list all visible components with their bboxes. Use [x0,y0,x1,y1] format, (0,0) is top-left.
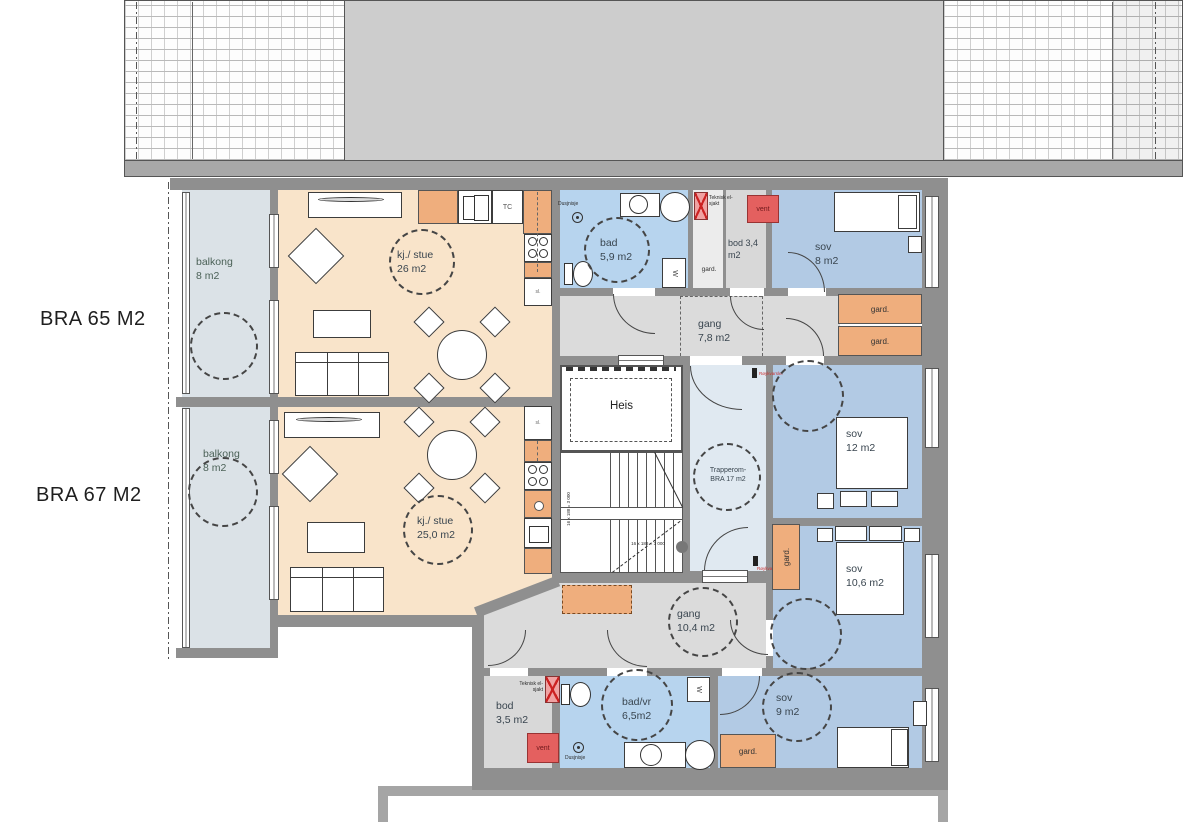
floor-plan: TC sl. sl. [0,0,1200,822]
wardrobe-sov8-upper: gard. [838,294,922,324]
fridge-icon [458,190,492,224]
el-shaft-bottom-icon [545,676,560,703]
room-label-sov8: sov8 m2 [815,241,838,268]
window-stue-top-2 [269,300,279,394]
counter-top-1 [418,190,458,224]
nightstand-sov106-left [817,528,833,542]
elevator-label: Heis [560,399,683,414]
stair-landing [561,507,682,520]
counter-dash-bottom [537,441,538,461]
gard-label: gard. [871,337,889,346]
stove-bottom-icon [524,462,552,490]
coffee-table-bottom [307,522,365,553]
tc-label: TC [503,204,512,211]
wardrobe-sov106: gard. [772,524,800,590]
vanity-bottom-sink [640,744,662,766]
room-label-bad-vr: bad/vr6,5m2 [622,696,651,723]
shower-symbol-top [572,212,583,223]
bed-sov9-pillow [891,729,908,766]
dusjnisje-top-label: Dusjnisje [558,201,578,207]
turning-circle-sov12 [772,360,844,432]
shower-symbol-bottom [573,742,584,753]
window-stue-bottom-2 [269,506,279,600]
counter-bot-1 [524,440,552,462]
gard-label: gard. [739,747,757,756]
wall-bottom-block-left [472,615,484,770]
toilet-bottom-tank [561,684,570,705]
bed-sov12-pillow-left [840,491,867,507]
vent-box-top: vent [747,195,779,223]
roof-eave-band [124,160,1183,177]
gard-label: gard. [754,544,818,570]
counter-bot-3 [524,548,552,574]
wall-bottom [472,768,948,790]
room-label-sov12: sov12 m2 [846,428,875,455]
roof-line-right [1112,2,1113,159]
stair-flight-upper [610,452,683,507]
window-sov8 [925,196,939,288]
nightstand-sov9 [913,701,927,726]
teknisk-top-label: Teknisk el- sjakt [709,195,733,207]
tall-cabinet-tc: TC [492,190,523,224]
wall-balcony-bottom [176,648,278,658]
doormat-dashed [562,585,632,614]
wardrobe-sov8-lower: gard. [838,326,922,356]
wardrobe-sov9: gard. [720,734,776,768]
dining-table-top [437,330,487,380]
elevator-door-marks [566,367,676,371]
bed-sov8-pillow [898,195,917,229]
washer-top-label: W [670,270,677,277]
room-balkong-bottom [182,406,270,652]
dusjnisje-bottom-label: Dusjnisje [565,755,585,761]
tv-bottom-icon [296,417,362,422]
bed-sov12-pillow-right [871,491,898,507]
opening-gangb-left-door [490,668,528,676]
bra-65-label: BRA 65 M2 [40,308,146,331]
nightstand-sov8 [908,236,922,253]
room-label-sov106: sov10,6 m2 [846,563,884,590]
counter-top-2 [524,262,552,278]
vent-top-label: vent [756,206,769,213]
roof-line-left [192,2,193,159]
oven-bottom-icon [524,518,552,548]
counter-dash-top [537,192,538,272]
sink-top-icon: sl. [524,278,552,306]
smoke-detector-top-icon [752,368,757,378]
trapperom-threshold [702,570,748,583]
el-shaft-top-icon [694,192,708,220]
demising-line-1 [680,296,681,356]
wall-under-stue [270,615,484,627]
window-sov106 [925,554,939,638]
teknisk-bottom-label: Teknisk el- sjakt [506,681,543,693]
room-label-balkong-top: balkong8 m2 [196,256,233,283]
tv-top-icon [318,197,384,202]
property-line [168,182,169,662]
vanity-top-sink [629,195,648,214]
room-label-bod-bottom: bod3,5 m2 [496,700,528,727]
vent-bottom-label: vent [536,745,549,752]
room-label-stue-top: kj./ stue26 m2 [397,249,433,276]
sofa-top [295,352,389,396]
bra-67-label: BRA 67 M2 [36,484,142,507]
window-sov12 [925,368,939,448]
balcony-glass-bottom [182,408,190,648]
roof-line-dashdot-left [136,2,137,159]
washer-bottom: W [687,677,710,702]
window-stue-top-1 [269,214,279,268]
room-label-balkong-bottom: balkong8 m2 [203,448,240,475]
sofa-bottom [290,567,384,612]
room-label-gang-top: gang7,8 m2 [698,318,730,345]
nightstand-sov106-right [904,528,920,542]
roof-line-dashdot-right [1155,2,1156,159]
toilet-top-tank [564,263,573,285]
terrace-outline [378,786,948,822]
nightstand-sov12 [817,493,834,509]
washbasin-bottom [685,740,715,770]
coffee-table-top [313,310,371,338]
bed-sov106-pillow-right [869,526,902,541]
gard-shaft-label: gard. [694,266,724,274]
stove-top-icon [524,234,552,262]
room-label-bad-top: bad5,9 m2 [600,237,632,264]
opening-bod-top-door [730,288,764,296]
counter-bot-2 [524,490,552,518]
dining-table-bottom [427,430,477,480]
washer-bottom-label: W [695,686,702,693]
room-label-sov9: sov9 m2 [776,692,799,719]
sink-bottom-label: sl. [536,420,541,426]
washbasin-top [660,192,690,222]
stair-dim-vertical: 16 x 188 = 3 000 [566,479,574,539]
opening-trapperom-top-door [690,356,742,365]
stair-dim-horizontal: 16 x 188 = 3 000 [616,541,680,546]
room-label-trapperom: Trapperom- BRA 17 m2 [692,466,764,484]
turning-circle-sov106 [770,598,842,670]
opening-sov9-door [722,668,762,676]
window-stue-bottom-1 [269,420,279,474]
wall-kitchen-core [552,178,560,583]
toilet-bottom-bowl [570,682,591,707]
room-label-bod-top: bod 3,4m2 [728,238,758,261]
tv-bench-bottom [284,412,380,438]
balcony-glass-top [182,192,190,394]
roof-tiles-left [124,0,345,161]
room-label-stue-bottom: kj./ stue25,0 m2 [417,515,455,542]
sink-bottom-icon: sl. [524,406,552,440]
vent-box-bottom: vent [527,733,559,763]
room-label-gang-bottom: gang10,4 m2 [677,608,715,635]
washer-top: W [662,258,686,288]
sink-top-label: sl. [536,289,541,295]
roof-tiles-right-shade [1112,1,1181,160]
window-sov9 [925,688,939,762]
bed-sov106-pillow-left [835,526,867,541]
turning-circle-balkong-top [190,312,258,380]
gard-label: gard. [871,305,889,314]
roof-center [344,0,944,161]
tv-bench-top [308,192,402,218]
elevator-threshold [618,355,664,366]
